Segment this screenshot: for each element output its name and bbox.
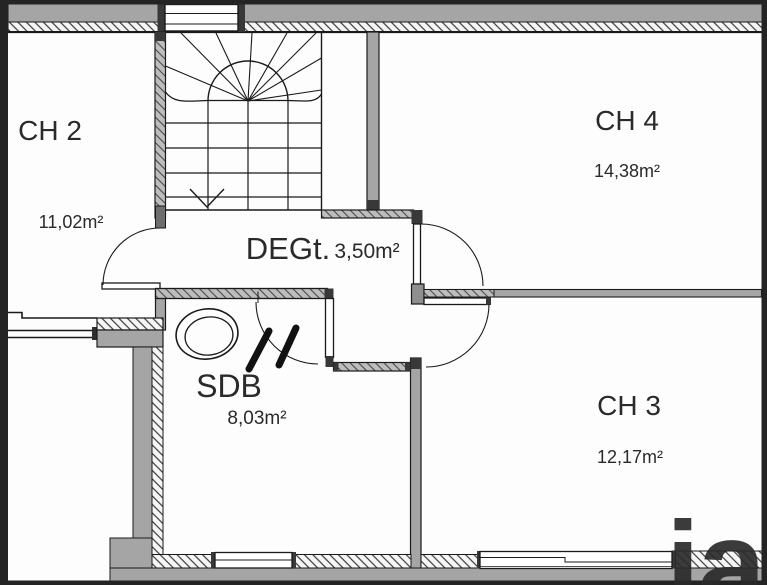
degt-area: 3,50m² xyxy=(334,240,399,263)
exterior-wall-top xyxy=(8,4,762,32)
border-top xyxy=(0,0,767,5)
ch3-area: 12,17m² xyxy=(597,447,663,467)
ch2-area: 11,02m² xyxy=(39,212,104,232)
ch4-left-wall xyxy=(367,32,379,210)
degt-label: DEGt. xyxy=(246,231,330,266)
stairwell-left-wall xyxy=(155,32,166,228)
ch4-door-leaf xyxy=(414,224,421,284)
ch3-window xyxy=(477,551,676,569)
border-left xyxy=(0,0,8,585)
sdb-label: SDB xyxy=(196,368,262,404)
ch4-area: 14,38m² xyxy=(594,161,660,181)
sdb-area: 8,03m² xyxy=(227,408,286,429)
ch2-door-leaf xyxy=(102,283,160,289)
floor-plan-canvas: CH 2 11,02m² CH 4 14,38m² DEGt. 3,50m² S… xyxy=(0,0,767,585)
border-bottom xyxy=(0,581,767,585)
ch2-label: CH 2 xyxy=(18,115,82,146)
sdb-window xyxy=(211,552,296,568)
ch4-label: CH 4 xyxy=(595,105,659,136)
ch3-label: CH 3 xyxy=(597,390,661,421)
ch3-door-leaf xyxy=(424,298,488,305)
agency-watermark: iad xyxy=(666,496,767,585)
floor-plan: CH 2 11,02m² CH 4 14,38m² DEGt. 3,50m² S… xyxy=(0,0,767,585)
stair-window xyxy=(158,4,246,32)
